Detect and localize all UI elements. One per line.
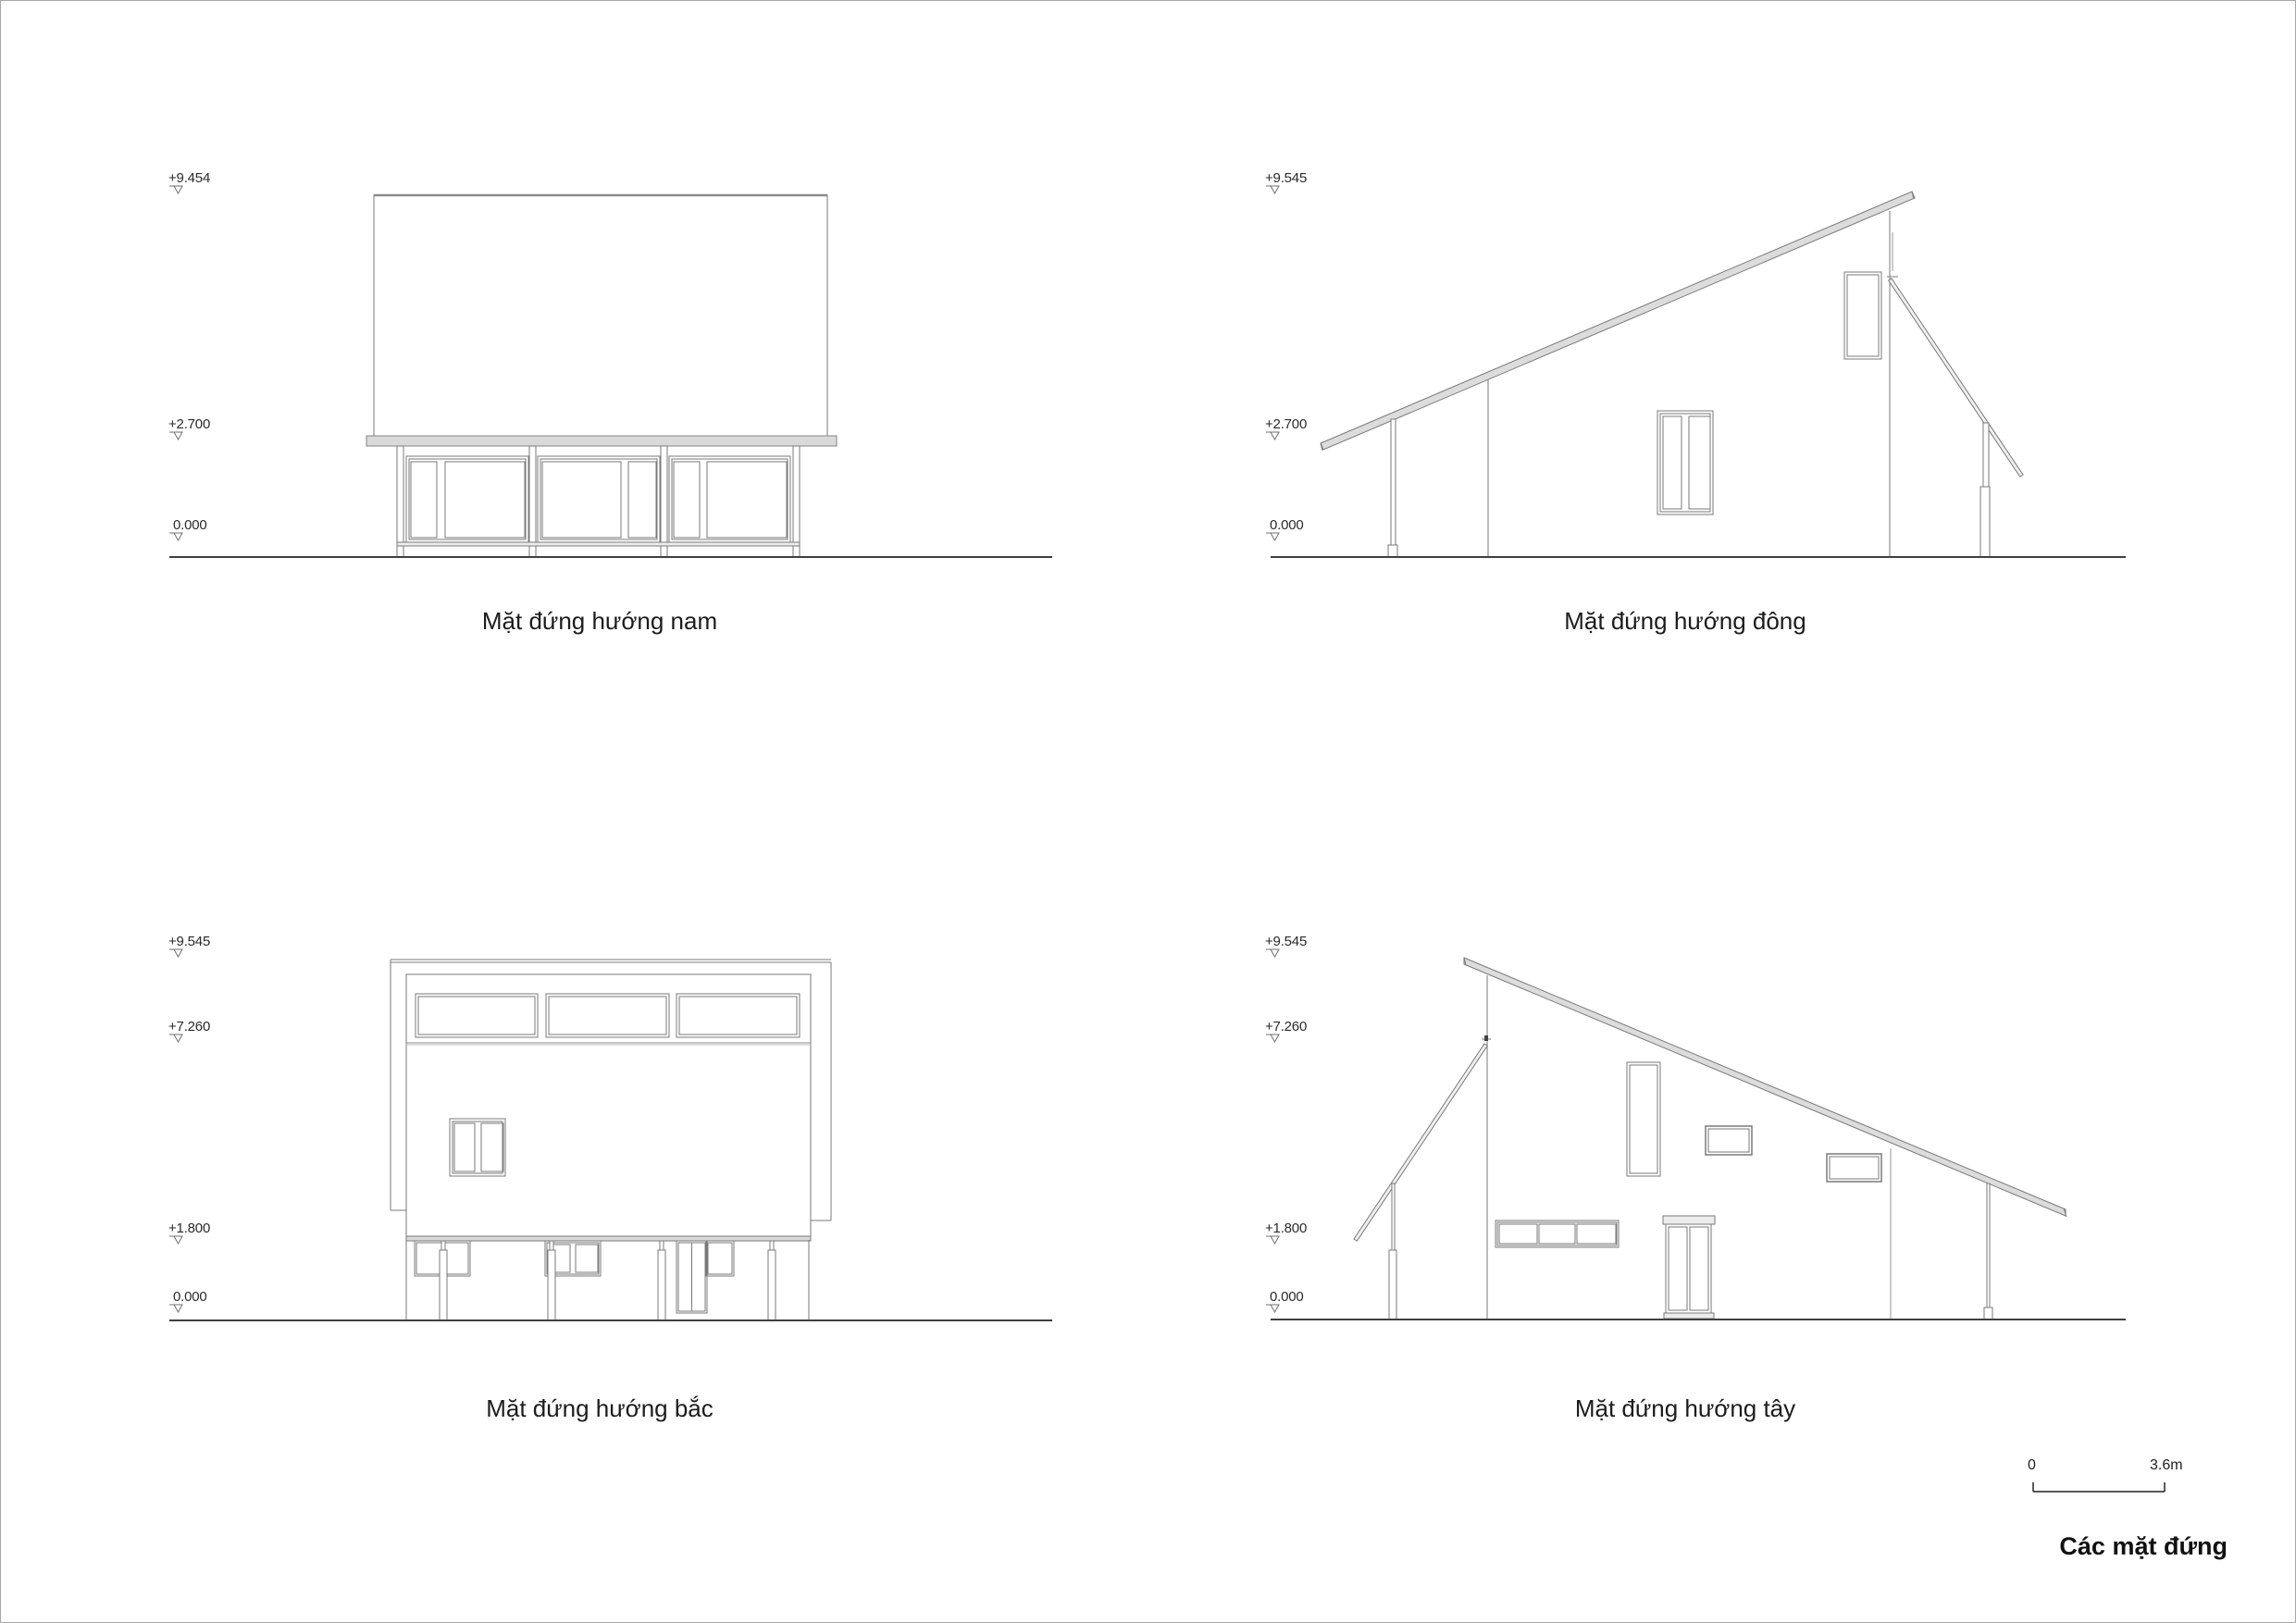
west-square-window-2 <box>1827 1154 1881 1182</box>
south-level-0000: 0.000 <box>173 517 207 533</box>
caption-west: Mặt đứng hướng tây <box>1457 1394 1914 1423</box>
elevation-linework <box>1 1 2296 1623</box>
west-elevation-drawing <box>1266 949 2126 1319</box>
north-level-9545: +9.545 <box>168 934 210 949</box>
south-upper-volume <box>374 195 827 436</box>
east-high-window <box>1844 272 1881 359</box>
east-left-post <box>1388 419 1397 557</box>
caption-south: Mặt đứng hướng nam <box>371 607 828 636</box>
south-level-markers <box>169 186 182 540</box>
west-level-7260: +7.260 <box>1265 1019 1307 1035</box>
caption-east: Mặt đứng hướng đông <box>1457 607 1914 636</box>
scale-end-label: 3.6m <box>2150 1457 2183 1474</box>
west-left-post <box>1389 1183 1396 1319</box>
east-level-9545: +9.545 <box>1265 170 1307 186</box>
north-elevation-drawing <box>169 949 1052 1320</box>
north-stilts <box>440 1241 776 1320</box>
east-level-2700: +2.700 <box>1265 416 1307 432</box>
north-level-0000: 0.000 <box>173 1289 207 1305</box>
scale-zero-label: 0 <box>2028 1457 2036 1474</box>
west-triple-window <box>1496 1220 1619 1247</box>
west-tall-window <box>1627 1062 1660 1176</box>
west-brace <box>1354 1035 1491 1241</box>
west-roof <box>1464 958 2066 1216</box>
south-elevation-drawing <box>169 186 1052 557</box>
south-post-feet <box>397 546 800 557</box>
south-floor-slab <box>366 436 837 446</box>
west-level-markers <box>1266 949 1279 1312</box>
north-face <box>406 974 811 1240</box>
east-roof <box>1321 192 1915 450</box>
north-level-1800: +1.800 <box>168 1220 210 1236</box>
south-level-2700: +2.700 <box>168 416 210 432</box>
scale-bar <box>2033 1482 2165 1492</box>
east-level-markers <box>1266 186 1279 540</box>
west-door <box>1663 1216 1715 1319</box>
west-square-window-1 <box>1706 1126 1752 1155</box>
caption-north: Mặt đứng hướng bắc <box>371 1394 828 1423</box>
east-right-post <box>1980 423 1990 557</box>
drawing-sheet: +9.454 +2.700 0.000 +9.545 +2.700 0.000 … <box>0 0 2296 1623</box>
west-level-1800: +1.800 <box>1265 1220 1307 1236</box>
north-undercroft-windows <box>415 1241 734 1313</box>
east-brace <box>1887 277 2023 477</box>
east-elevation-drawing <box>1266 186 2126 557</box>
south-level-9454: +9.454 <box>168 170 210 186</box>
south-window-band <box>406 456 790 542</box>
north-level-markers <box>169 949 182 1312</box>
sheet-title: Các mặt đứng <box>1991 1532 2228 1561</box>
north-level-7260: +7.260 <box>168 1019 210 1035</box>
south-sill-beam <box>397 542 800 546</box>
south-posts <box>397 446 800 547</box>
west-level-9545: +9.545 <box>1265 934 1307 949</box>
west-level-0000: 0.000 <box>1270 1289 1304 1305</box>
north-slab-edge <box>406 1236 811 1241</box>
east-level-0000: 0.000 <box>1270 517 1304 533</box>
east-mid-window <box>1657 411 1713 514</box>
west-right-post <box>1984 1183 1992 1319</box>
